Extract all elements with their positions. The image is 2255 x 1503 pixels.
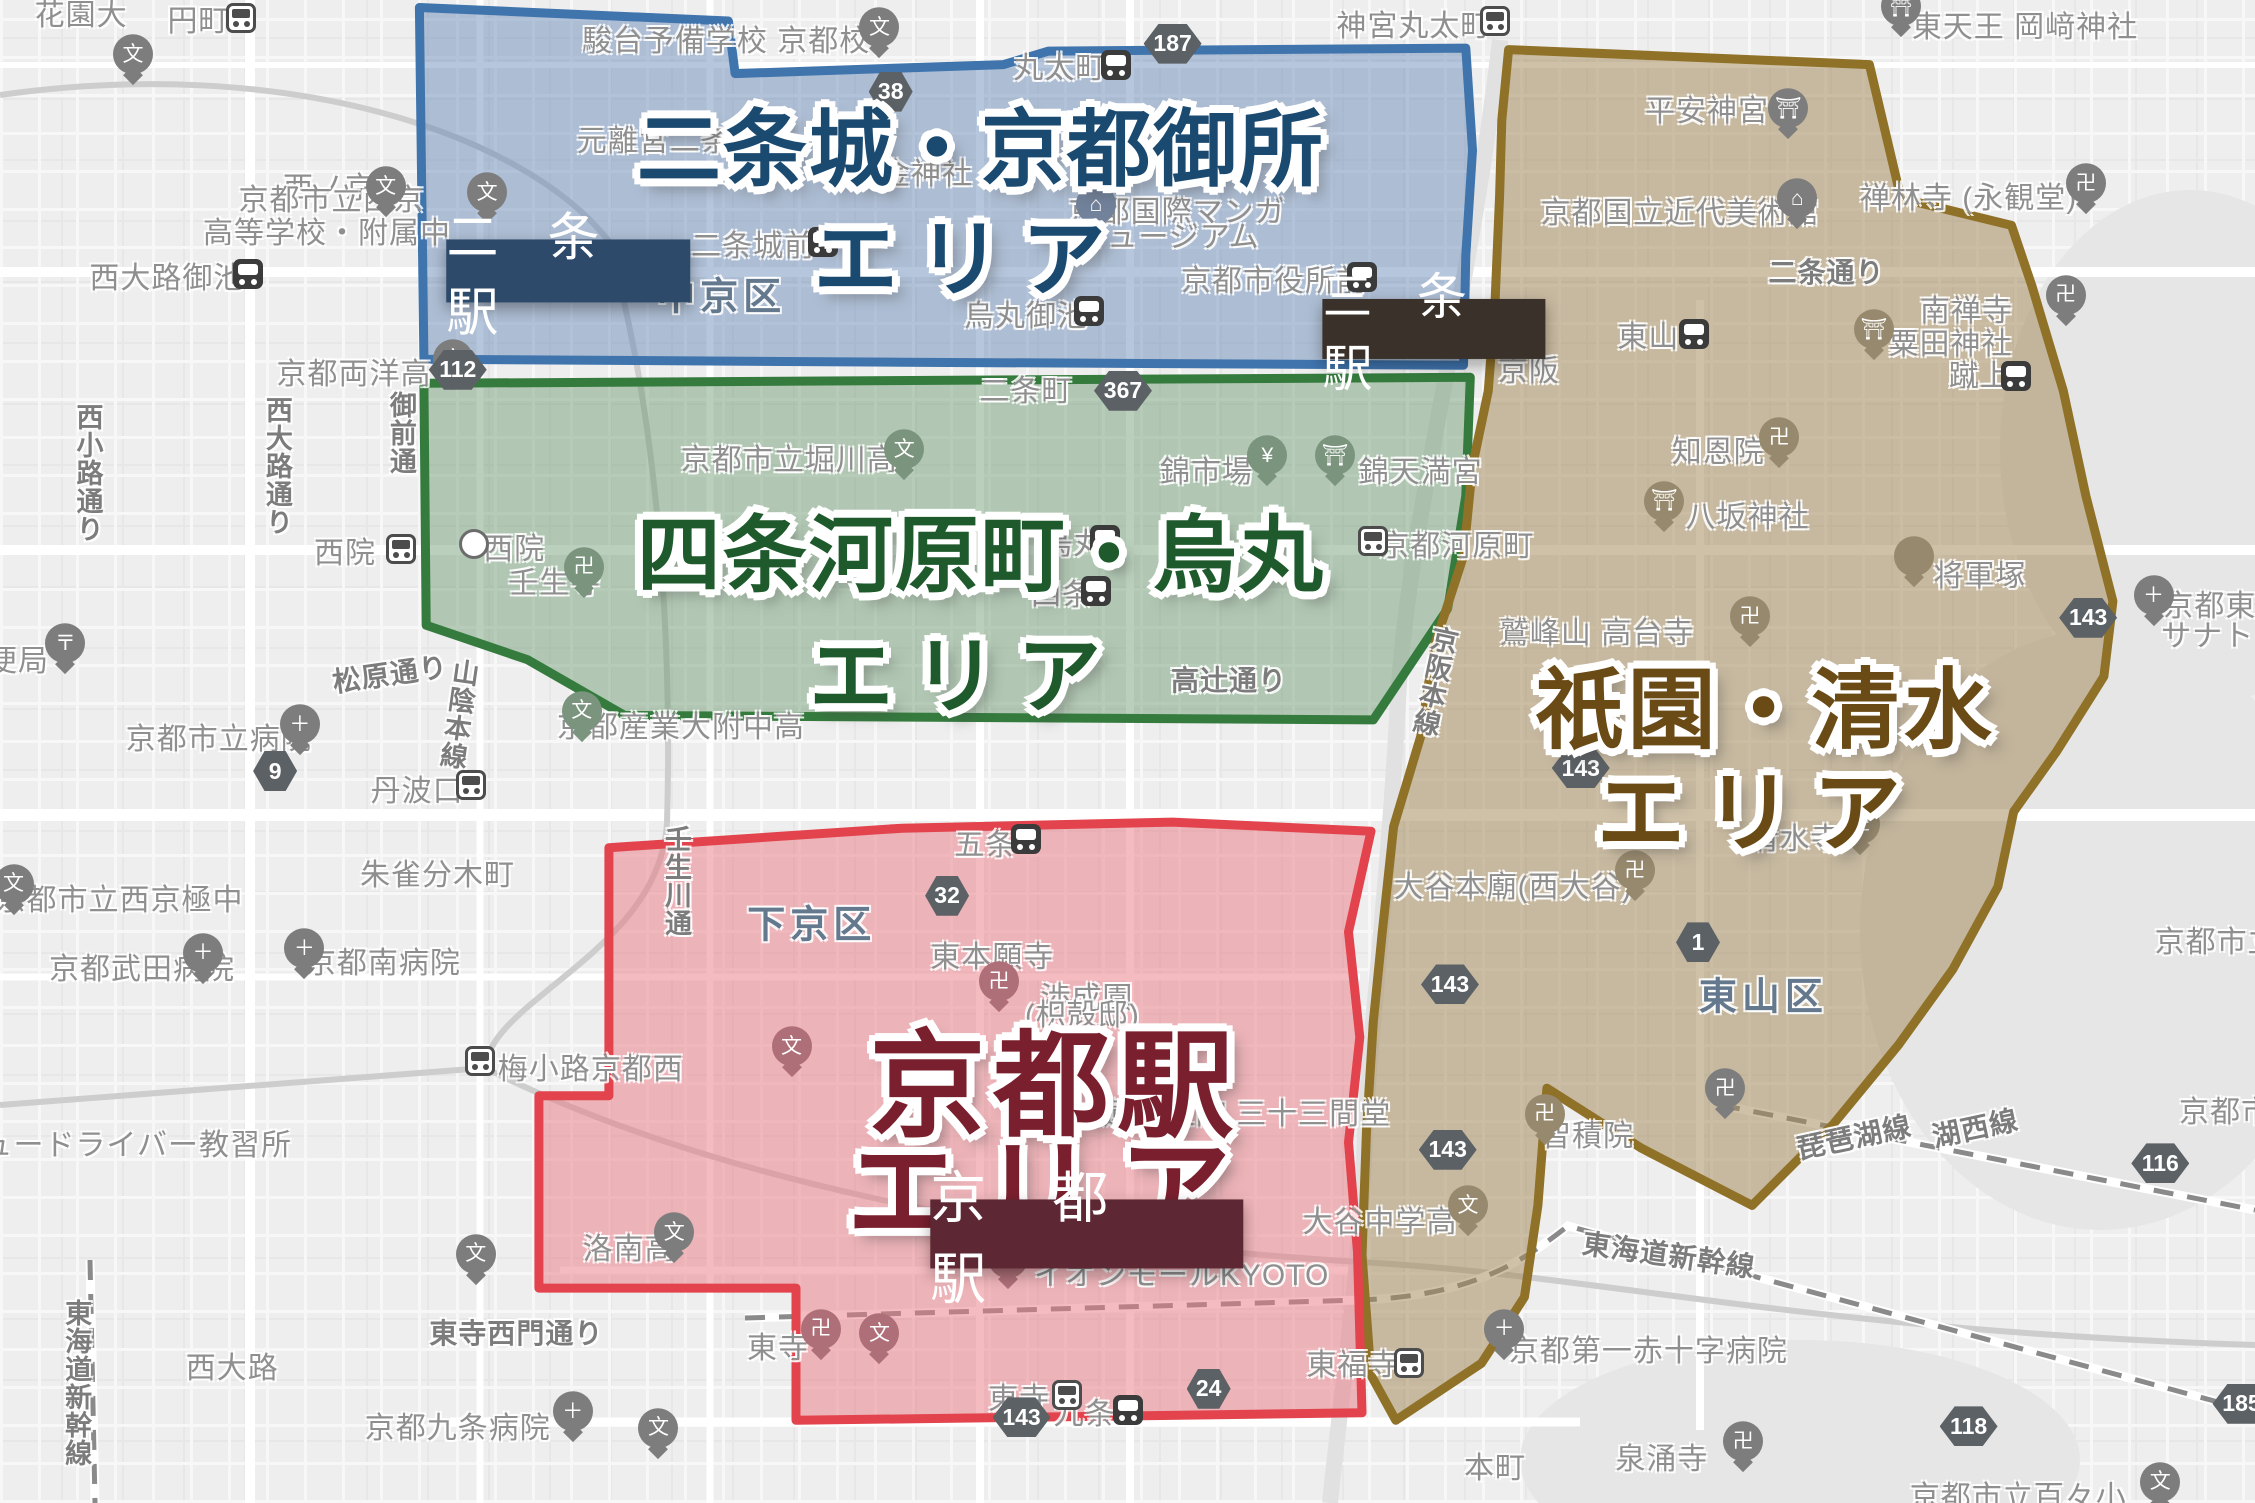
station-badge-kyoto-station: 京 都 駅: [930, 1199, 1243, 1268]
station-badge-nijojo-gosho: 二 条 駅: [446, 239, 690, 302]
area-title-shijo-karasuma-line1: 四条河原町・烏丸: [637, 488, 1325, 609]
kyoto-area-map: 花園大円町駿台予備学校 京都校神宮丸太町東天王 岡﨑神社平安神宮禅林寺 (永観堂…: [0, 0, 2255, 1503]
area-title-nijojo-gosho-line2: エリア: [814, 192, 1126, 313]
station-badge-gion-kiyomizu: 三 条 駅: [1323, 299, 1546, 359]
area-title-nijojo-gosho-line1: 二条城・京都御所: [637, 82, 1325, 203]
area-titles-layer: 二条城・京都御所エリア二 条 駅四条河原町・烏丸エリア祇園・清水エリア三 条 駅…: [0, 0, 2255, 1503]
area-title-gion-kiyomizu-line2: エリア: [1597, 742, 1921, 869]
area-title-shijo-karasuma-line2: エリア: [809, 610, 1121, 731]
